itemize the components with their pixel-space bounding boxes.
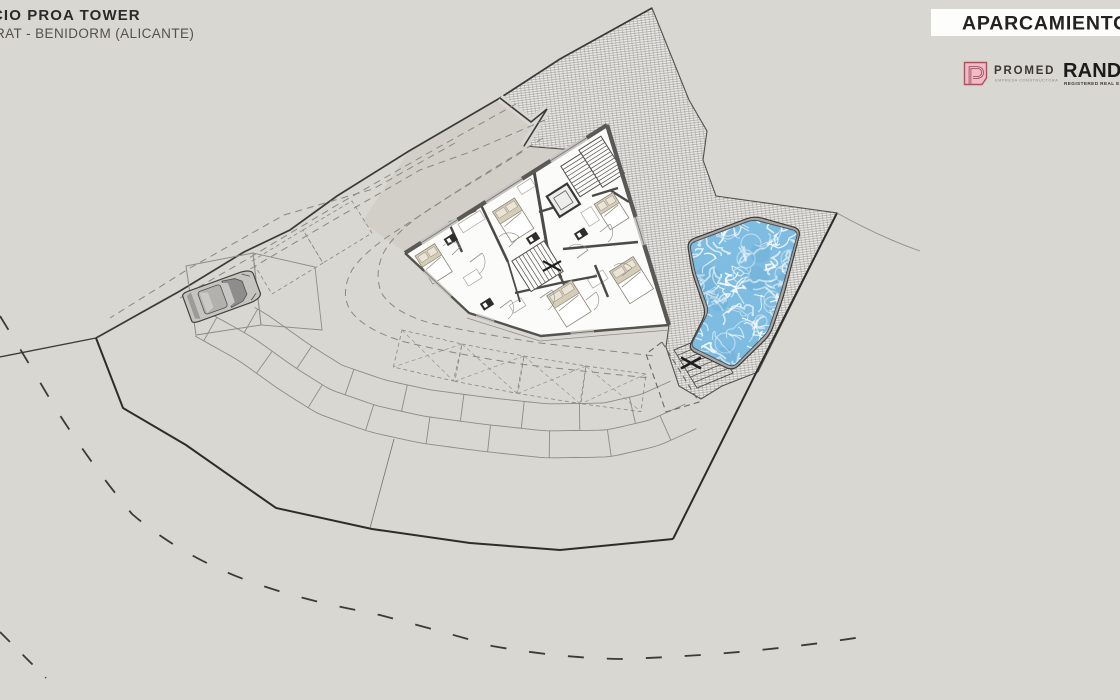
svg-text:CIO PROA TOWER: CIO PROA TOWER (0, 7, 141, 24)
svg-text:REGISTERED REAL ESTATE: REGISTERED REAL ESTATE (1064, 81, 1120, 86)
svg-text:APARCAMIENTOS: APARCAMIENTOS (962, 13, 1120, 35)
svg-text:EMPRESA CONSTRUCTORA: EMPRESA CONSTRUCTORA (995, 79, 1058, 83)
svg-text:RAT - BENIDORM (ALICANTE): RAT - BENIDORM (ALICANTE) (0, 26, 194, 41)
svg-text:PROMED: PROMED (994, 65, 1055, 77)
svg-text:RANDO: RANDO (1063, 60, 1120, 82)
